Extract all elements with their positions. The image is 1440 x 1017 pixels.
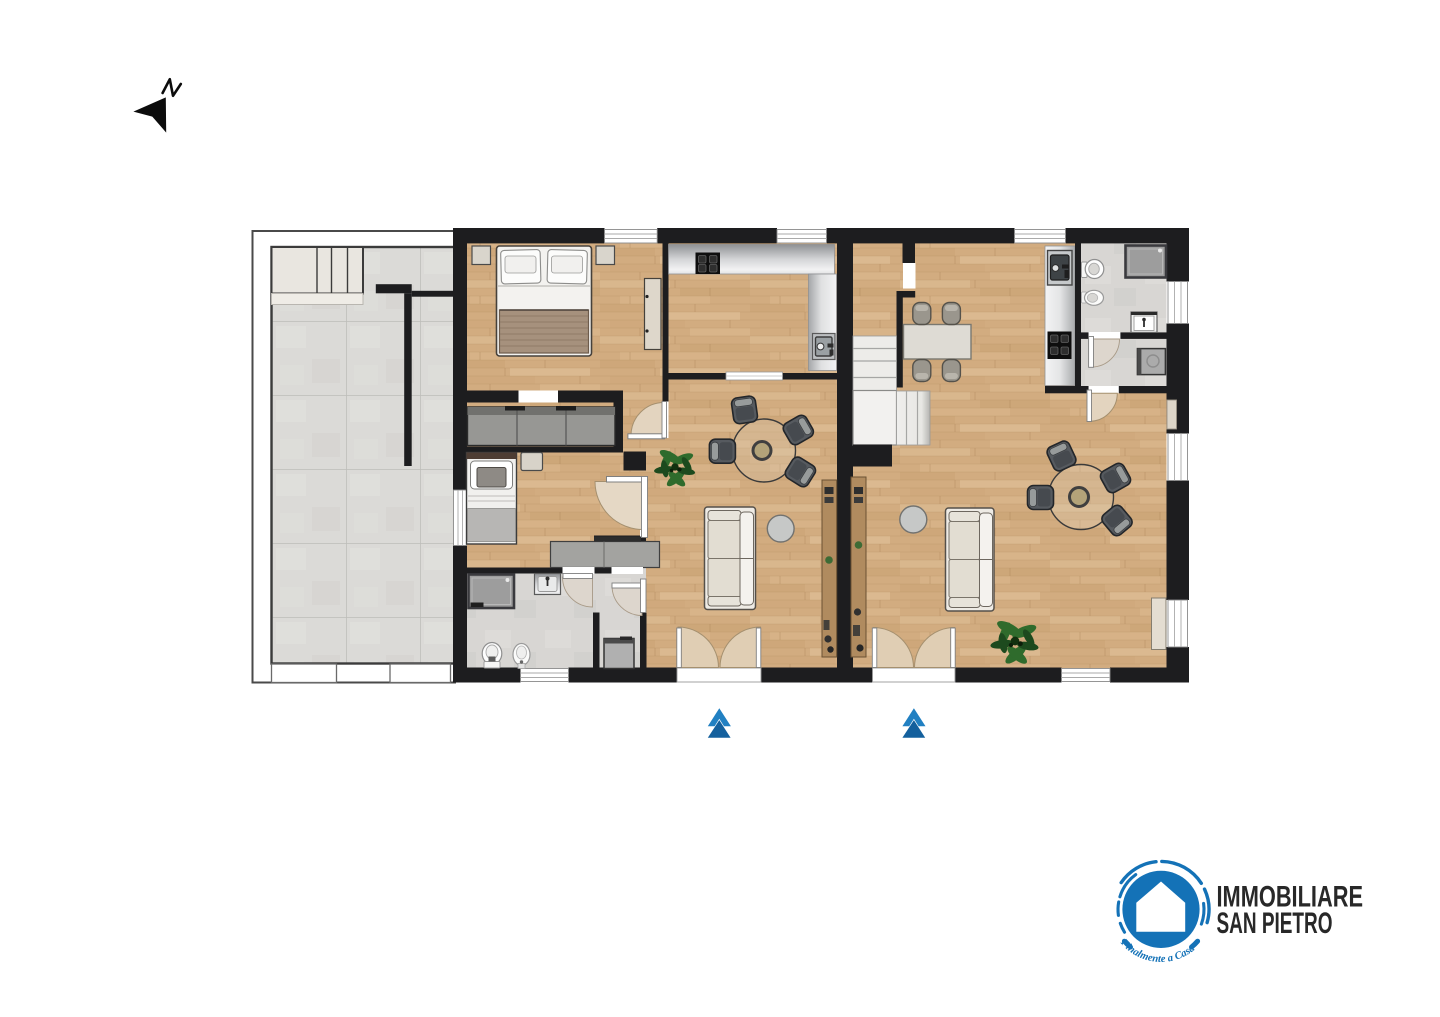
svg-text:SAN PIETRO: SAN PIETRO: [1217, 907, 1333, 940]
